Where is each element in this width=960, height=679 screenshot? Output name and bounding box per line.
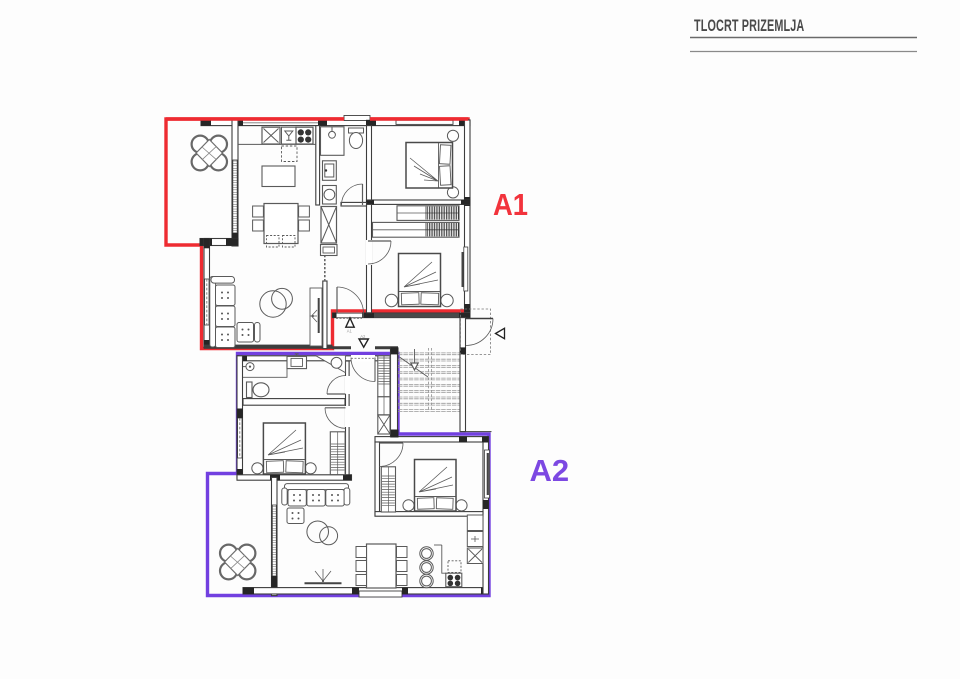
svg-text:A1: A1: [493, 189, 528, 223]
svg-text:A1: A1: [347, 329, 353, 334]
svg-text:TLOCRT PRIZEMLJA: TLOCRT PRIZEMLJA: [694, 17, 804, 36]
svg-text:A2: A2: [530, 453, 570, 488]
svg-text:A2: A2: [360, 334, 366, 339]
